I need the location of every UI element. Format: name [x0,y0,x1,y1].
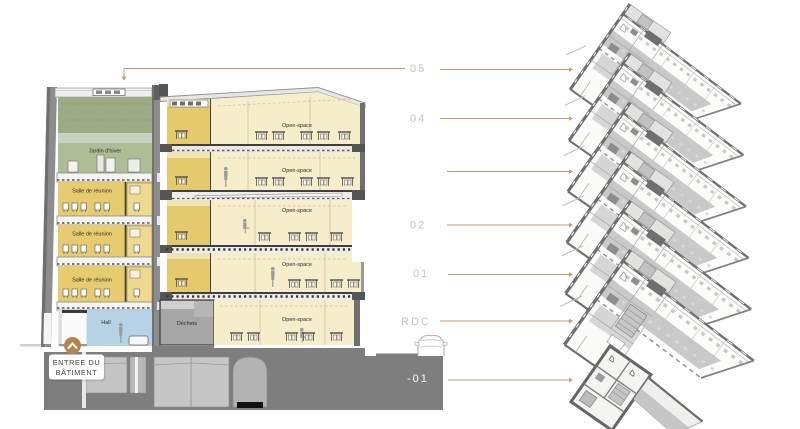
svg-text:Salle de réunion: Salle de réunion [72,189,112,195]
svg-text:Salle de réunion: Salle de réunion [72,278,112,284]
svg-text:Jardin d'hiver: Jardin d'hiver [89,149,122,155]
svg-text:Déchets: Déchets [177,321,197,327]
svg-text:04: 04 [410,113,426,125]
svg-text:02: 02 [410,220,426,232]
svg-text:RDC: RDC [401,316,431,328]
svg-text:Open-space: Open-space [282,262,312,268]
svg-text:05: 05 [410,63,426,75]
svg-text:Open-space: Open-space [282,168,312,174]
svg-text:Open-space: Open-space [282,208,312,214]
svg-text:Salle de réunion: Salle de réunion [72,232,112,238]
svg-text:01: 01 [413,268,429,280]
svg-text:Hall: Hall [101,320,110,326]
svg-text:Open-space: Open-space [282,123,312,129]
svg-text:BÂTIMENT: BÂTIMENT [56,368,98,377]
svg-text:Open-space: Open-space [282,317,312,323]
svg-text:ENTREE DU: ENTREE DU [53,358,101,367]
svg-text:-01: -01 [407,373,429,385]
